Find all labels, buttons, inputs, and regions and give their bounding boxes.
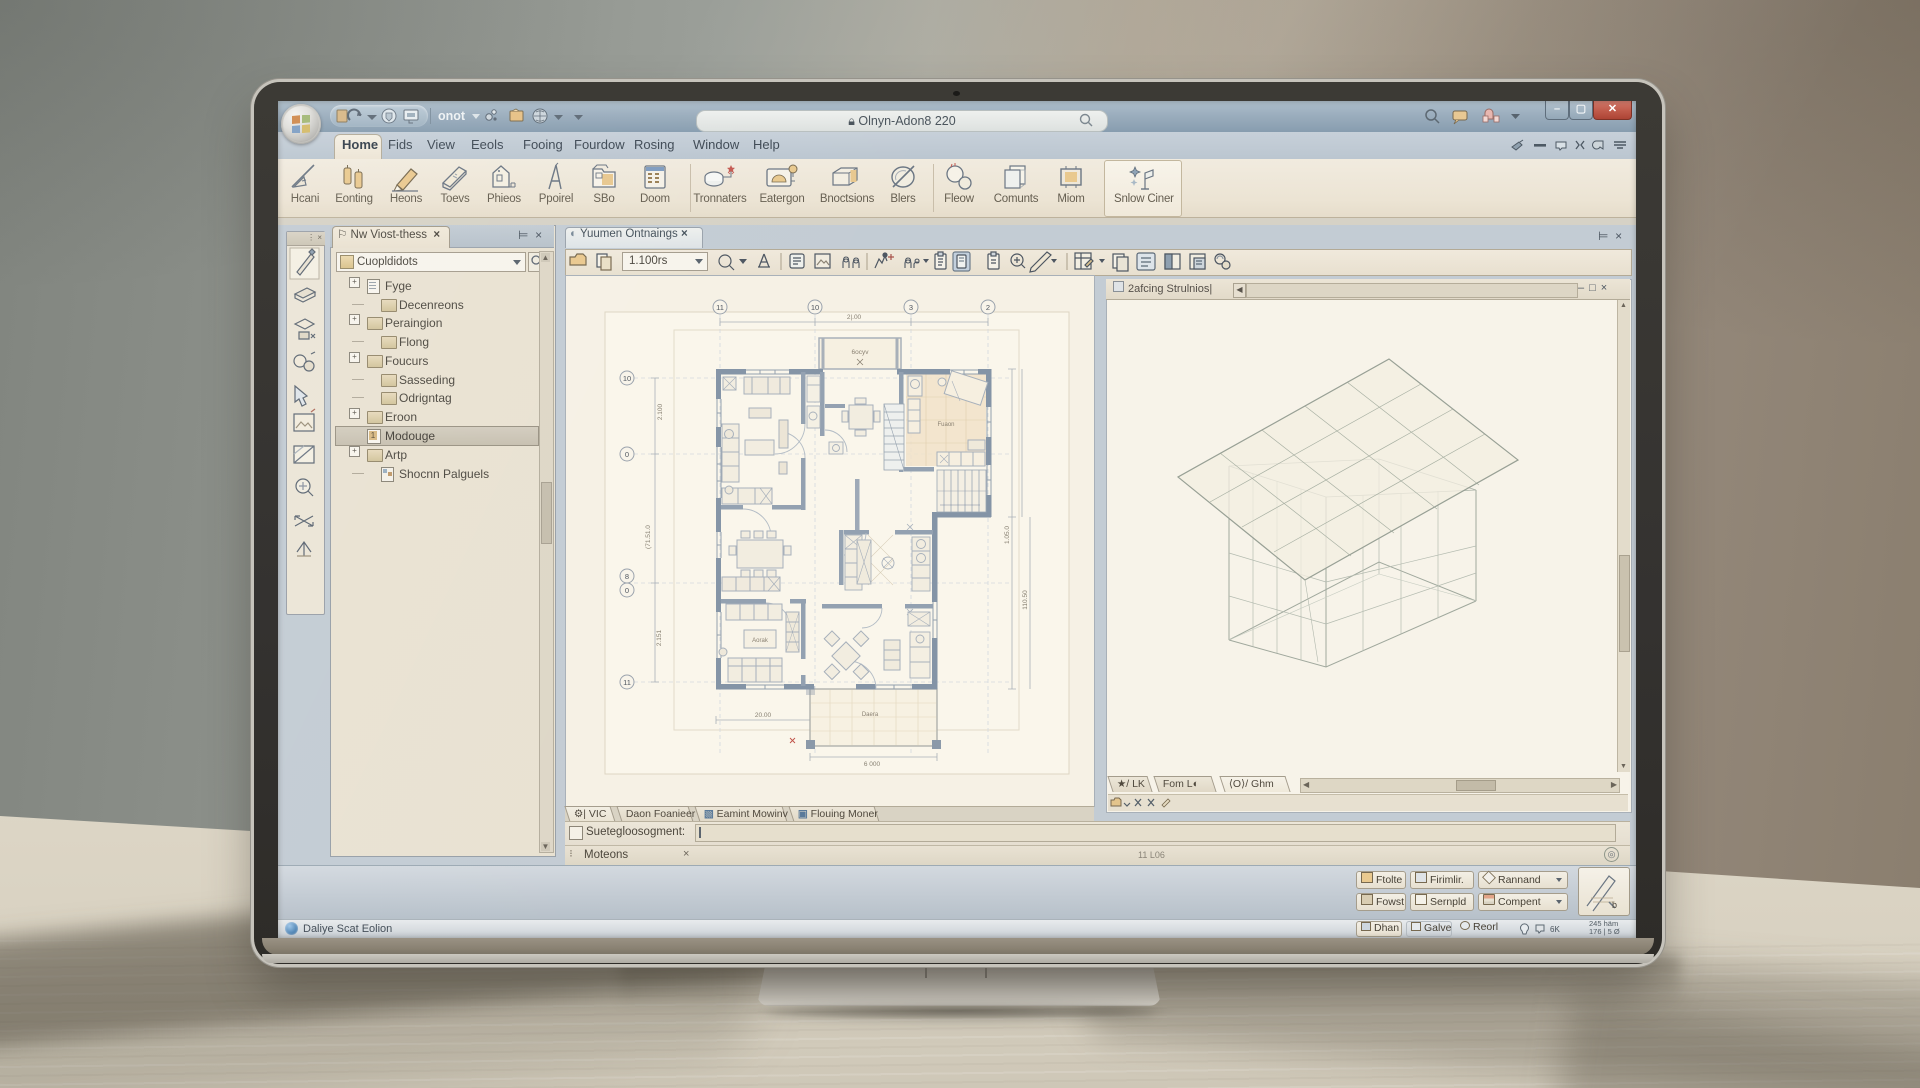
svg-text:0: 0 — [625, 450, 629, 459]
svg-text:b: b — [1612, 900, 1617, 910]
svg-text:2.151: 2.151 — [656, 629, 663, 646]
svg-text:11: 11 — [623, 678, 631, 687]
svg-text:6ocyv: 6ocyv — [852, 349, 870, 356]
svg-text:6K: 6K — [1550, 925, 1560, 934]
svg-text:20.00: 20.00 — [755, 712, 772, 719]
svg-text:2|.00: 2|.00 — [847, 314, 862, 321]
svg-text:110.50: 110.50 — [1022, 590, 1029, 610]
svg-text:Aorak: Aorak — [752, 638, 769, 644]
svg-text:11: 11 — [716, 303, 724, 312]
svg-text:Daera: Daera — [862, 712, 879, 718]
svg-text:Fuaon: Fuaon — [937, 422, 954, 428]
svg-text:(71.51.0: (71.51.0 — [645, 525, 652, 549]
svg-text:2.100: 2.100 — [657, 403, 664, 420]
svg-text:3: 3 — [909, 303, 913, 312]
svg-text:8: 8 — [625, 572, 629, 581]
svg-text:1.05.0: 1.05.0 — [1004, 526, 1011, 544]
svg-text:0: 0 — [625, 586, 629, 595]
svg-text:2: 2 — [986, 303, 990, 312]
svg-text:6 000: 6 000 — [864, 761, 881, 768]
svg-text:10: 10 — [623, 374, 631, 383]
svg-text:10: 10 — [811, 303, 819, 312]
